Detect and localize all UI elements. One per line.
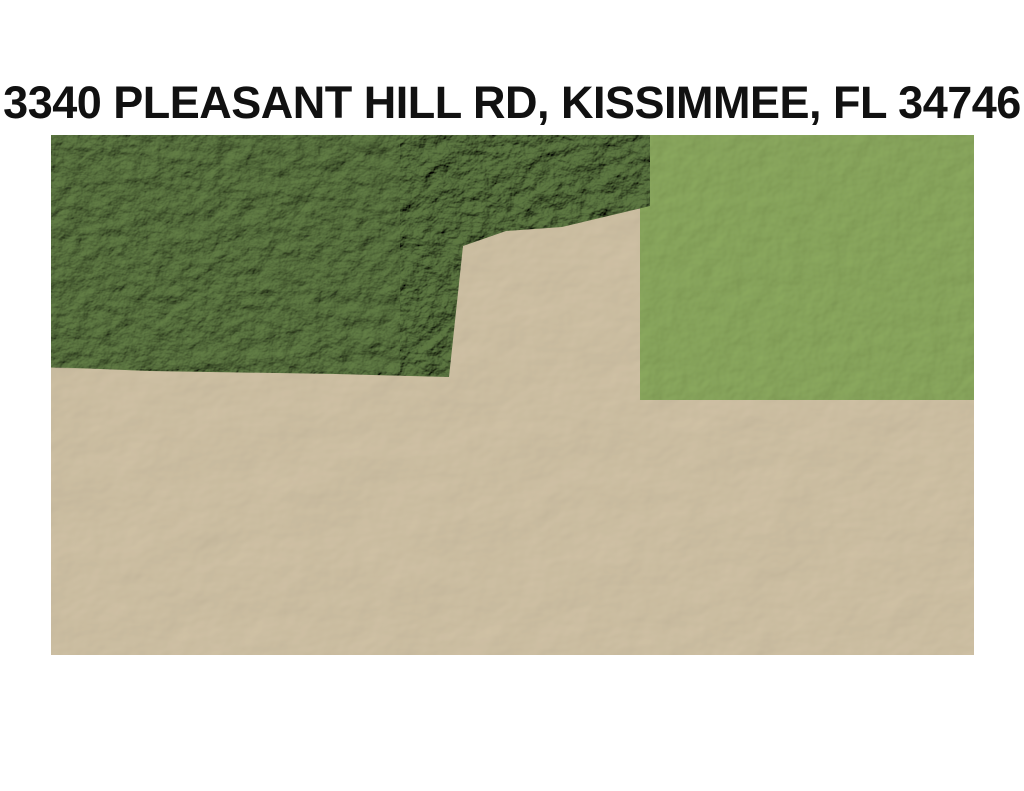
svg-text:3340 PLEASANT HILL RD, KISSIMM: 3340 PLEASANT HILL RD, KISSIMMEE, FL 347… <box>3 77 1021 128</box>
